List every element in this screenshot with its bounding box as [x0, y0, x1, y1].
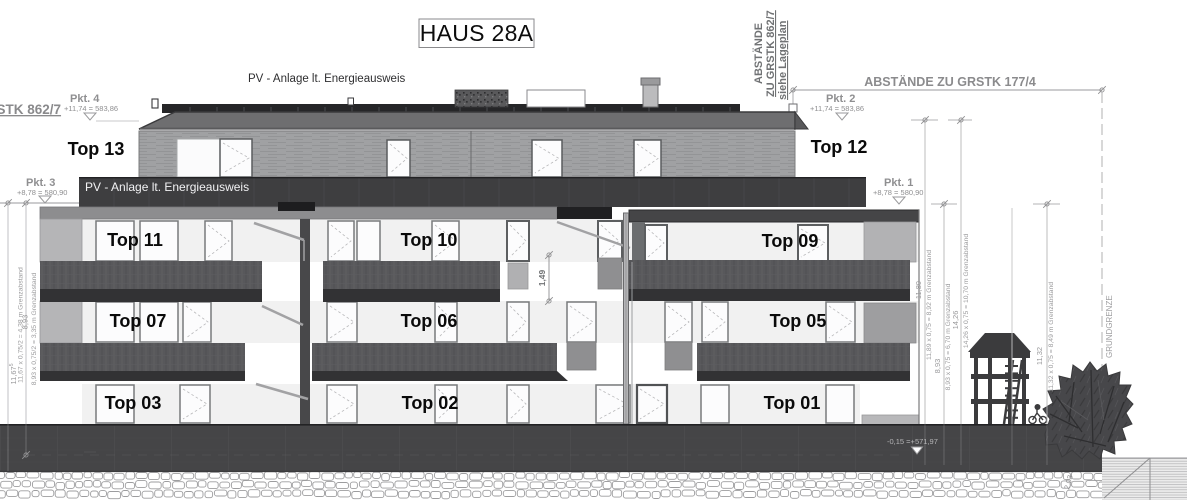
svg-text:Top 09: Top 09: [762, 231, 819, 251]
svg-text:8,93 x 0,75 = 6,70 m Grenzabst: 8,93 x 0,75 = 6,70 m Grenzabstand: [945, 283, 952, 390]
svg-text:GRUNDGRENZE: GRUNDGRENZE: [1105, 295, 1114, 358]
svg-text:11,32 x 0,75 = 8,49 m Grenzabs: 11,32 x 0,75 = 8,49 m Grenzabstand: [1048, 282, 1055, 392]
svg-text:+11,74 = 583,86: +11,74 = 583,86: [64, 104, 118, 113]
svg-text:11,32: 11,32: [1035, 347, 1044, 365]
svg-text:Top 11: Top 11: [107, 230, 163, 250]
svg-text:HAUS 28A: HAUS 28A: [420, 20, 534, 46]
svg-text:Top 05: Top 05: [770, 311, 827, 331]
svg-text:14,26 x 0,75 = 10,70 m Grenzab: 14,26 x 0,75 = 10,70 m Grenzabstand: [963, 234, 970, 349]
svg-text:11,89 x 0,75 = 8,92 m Grenzabs: 11,89 x 0,75 = 8,92 m Grenzabstand: [926, 250, 933, 360]
svg-text:ABSTÄNDE: ABSTÄNDE: [752, 23, 765, 84]
svg-text:Top 10: Top 10: [401, 230, 458, 250]
svg-text:11,89: 11,89: [914, 281, 923, 299]
svg-text:siehe Lageplan: siehe Lageplan: [777, 20, 789, 100]
svg-text:-0,15 =+571,97: -0,15 =+571,97: [887, 437, 938, 446]
svg-text:Top 06: Top 06: [401, 311, 458, 331]
svg-text:1,49: 1,49: [537, 269, 547, 286]
svg-text:Top 07: Top 07: [110, 311, 167, 331]
svg-text:PV - Anlage lt. Energieausweis: PV - Anlage lt. Energieausweis: [248, 73, 406, 85]
svg-text:PV - Anlage lt. Energieausweis: PV - Anlage lt. Energieausweis: [85, 180, 249, 194]
svg-text:ABSTÄNDE ZU GRSTK 177/4: ABSTÄNDE ZU GRSTK 177/4: [864, 74, 1036, 89]
svg-text:8,93: 8,93: [21, 315, 30, 330]
svg-text:+11,74 = 583,86: +11,74 = 583,86: [810, 104, 864, 113]
svg-text:+8,78 = 580,90: +8,78 = 580,90: [873, 188, 923, 197]
svg-text:Top 01: Top 01: [764, 393, 821, 413]
svg-text:14,26: 14,26: [951, 311, 960, 330]
svg-text:8,93: 8,93: [933, 359, 942, 374]
svg-text:GSTK 862/7: GSTK 862/7: [0, 102, 61, 117]
svg-text:Top 03: Top 03: [105, 393, 162, 413]
svg-text:Top 02: Top 02: [402, 393, 459, 413]
svg-text:8,93 x 0,75/2 = 3,35 m Grenzab: 8,93 x 0,75/2 = 3,35 m Grenzabstand: [31, 273, 38, 386]
svg-text:Top 13: Top 13: [68, 139, 125, 159]
svg-text:Top 12: Top 12: [811, 137, 868, 157]
svg-text:ZU GRSTK 862/7: ZU GRSTK 862/7: [765, 10, 777, 97]
